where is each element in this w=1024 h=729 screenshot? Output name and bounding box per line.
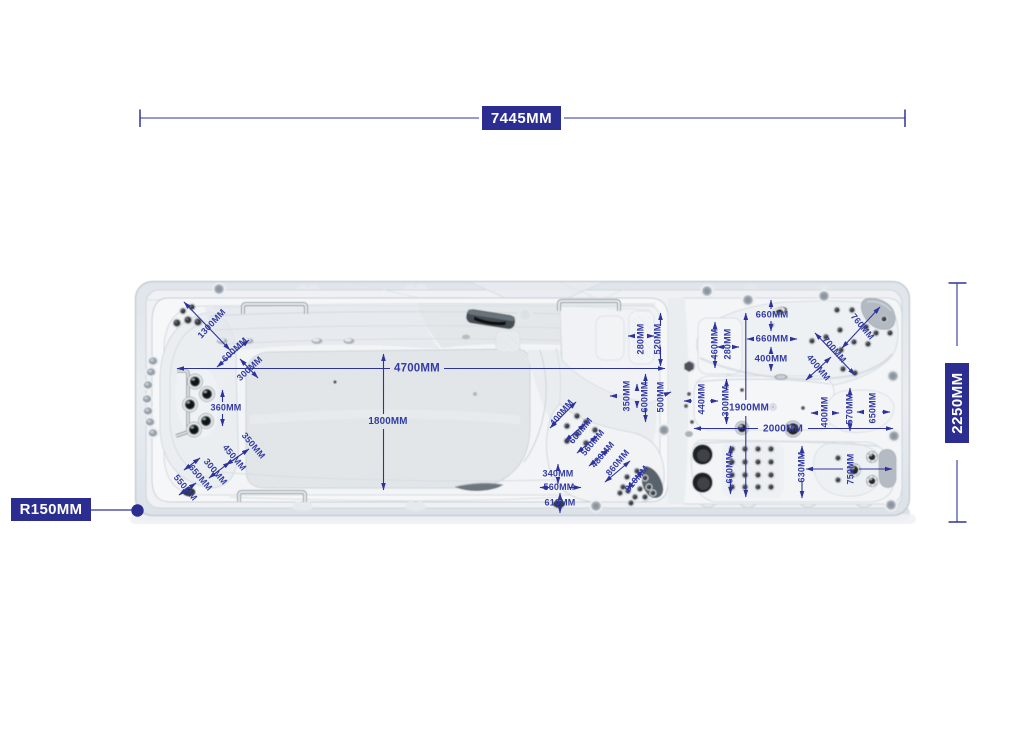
svg-text:1800MM: 1800MM — [368, 416, 407, 427]
svg-text:400MM: 400MM — [755, 354, 788, 365]
svg-text:600MM: 600MM — [639, 381, 649, 412]
svg-text:560MM: 560MM — [543, 482, 574, 492]
svg-text:660MM: 660MM — [756, 310, 789, 321]
svg-text:660MM: 660MM — [756, 334, 789, 345]
svg-text:7445MM: 7445MM — [491, 110, 552, 127]
svg-text:500MM: 500MM — [655, 381, 665, 412]
svg-text:2250MM: 2250MM — [949, 372, 966, 433]
svg-text:460MM: 460MM — [709, 328, 719, 359]
svg-text:300MM: 300MM — [720, 385, 730, 416]
svg-text:4700MM: 4700MM — [394, 363, 440, 375]
svg-text:750MM: 750MM — [845, 453, 855, 484]
svg-text:350MM: 350MM — [621, 380, 631, 411]
svg-text:280MM: 280MM — [635, 323, 645, 354]
svg-text:1900MM: 1900MM — [729, 403, 769, 414]
svg-text:600MM: 600MM — [724, 452, 734, 483]
svg-text:610MM: 610MM — [544, 497, 575, 507]
svg-text:570MM: 570MM — [844, 393, 854, 424]
svg-text:360MM: 360MM — [210, 402, 241, 412]
svg-text:650MM: 650MM — [867, 392, 877, 423]
svg-text:R150MM: R150MM — [20, 501, 83, 518]
svg-text:630MM: 630MM — [796, 451, 806, 482]
svg-text:400MM: 400MM — [819, 396, 829, 427]
svg-text:2000MM: 2000MM — [763, 423, 803, 434]
svg-text:340MM: 340MM — [542, 468, 573, 478]
svg-text:280MM: 280MM — [722, 328, 732, 359]
svg-text:440MM: 440MM — [696, 383, 706, 414]
